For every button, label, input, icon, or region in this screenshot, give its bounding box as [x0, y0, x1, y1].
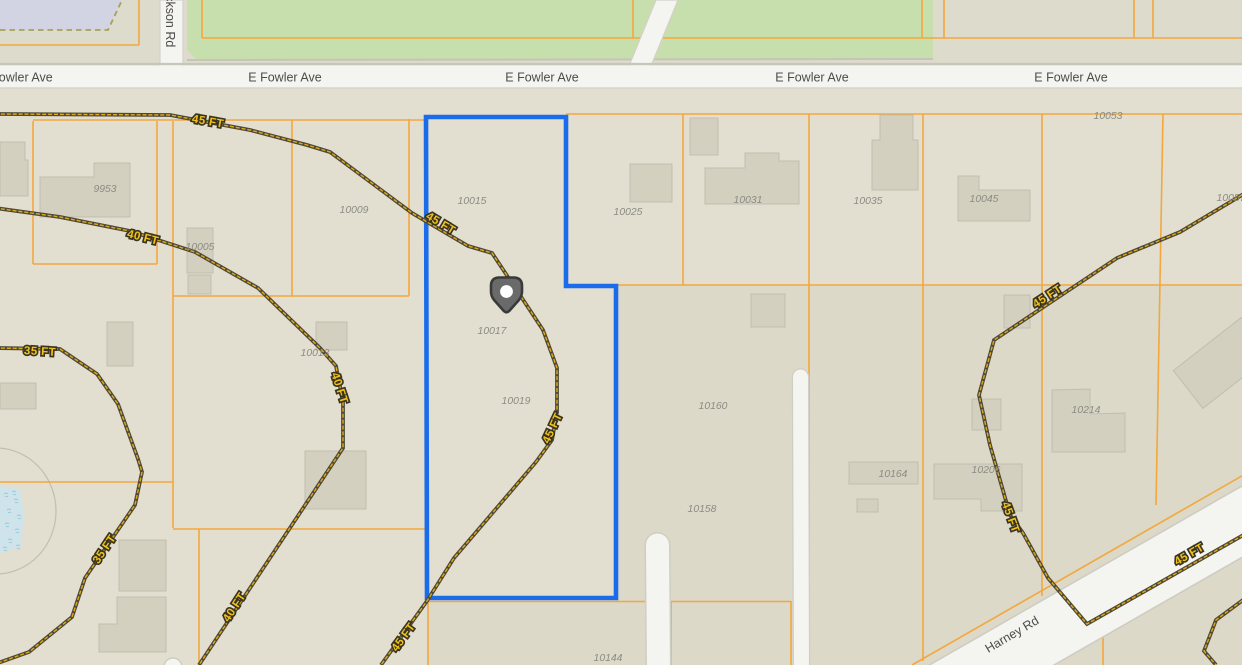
svg-text:Jackson Rd: Jackson Rd — [163, 0, 177, 47]
svg-text:10019: 10019 — [502, 396, 531, 407]
svg-text:10164: 10164 — [879, 469, 908, 480]
svg-text:9953: 9953 — [93, 184, 116, 195]
svg-text:E Fowler Ave: E Fowler Ave — [775, 71, 848, 85]
svg-text:10206: 10206 — [972, 465, 1001, 476]
svg-text:10017: 10017 — [478, 326, 508, 337]
svg-text:10005: 10005 — [186, 242, 215, 253]
svg-text:E Fowler Ave: E Fowler Ave — [248, 71, 321, 85]
svg-text:10160: 10160 — [699, 401, 728, 412]
svg-text:10144: 10144 — [594, 653, 623, 664]
svg-text:E Fowler Ave: E Fowler Ave — [1034, 71, 1107, 85]
svg-text:10057: 10057 — [1217, 193, 1242, 204]
svg-text:10015: 10015 — [458, 196, 487, 207]
svg-text:E Fowler Ave: E Fowler Ave — [0, 71, 53, 85]
svg-text:10214: 10214 — [1072, 405, 1101, 416]
svg-text:35 FT: 35 FT — [24, 345, 57, 359]
svg-text:10009: 10009 — [340, 205, 369, 216]
svg-text:E Fowler Ave: E Fowler Ave — [505, 71, 578, 85]
svg-text:10045: 10045 — [970, 194, 999, 205]
svg-text:10013: 10013 — [301, 348, 330, 359]
svg-text:10025: 10025 — [614, 207, 643, 218]
svg-text:10053: 10053 — [1094, 111, 1123, 122]
svg-text:10031: 10031 — [734, 195, 763, 206]
svg-text:10158: 10158 — [688, 504, 717, 515]
svg-text:10035: 10035 — [854, 196, 883, 207]
